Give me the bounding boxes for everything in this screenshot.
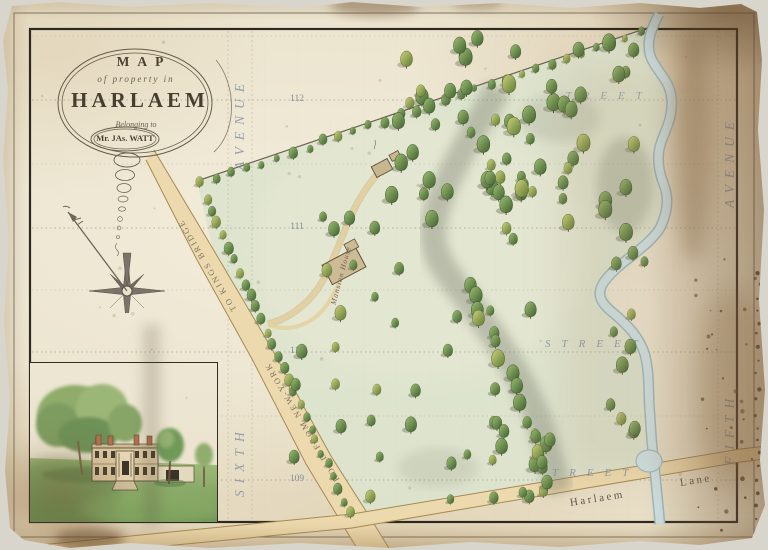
stain-top-mark-1 [330, 0, 420, 16]
stain-bottom-left [0, 430, 135, 550]
map-scan: MAP of property in HARLAEM Belonging to … [0, 0, 768, 550]
stain-top-mark-2 [452, 0, 502, 10]
stain-right-band [648, 0, 768, 550]
stain-right-aging [560, 60, 720, 480]
stain-left-edge [0, 0, 26, 550]
stain-right-mid [700, 290, 768, 490]
stain-bottom-left-dark [55, 528, 125, 550]
paper-sheet: MAP of property in HARLAEM Belonging to … [0, 0, 768, 550]
aging-layer [0, 0, 768, 550]
stain-bottom-band [0, 524, 768, 550]
stain-inset-streak [143, 325, 160, 525]
stain-top-edge [0, 0, 768, 18]
stain-top-right [590, 0, 768, 75]
stain-right-streak [676, 30, 710, 260]
